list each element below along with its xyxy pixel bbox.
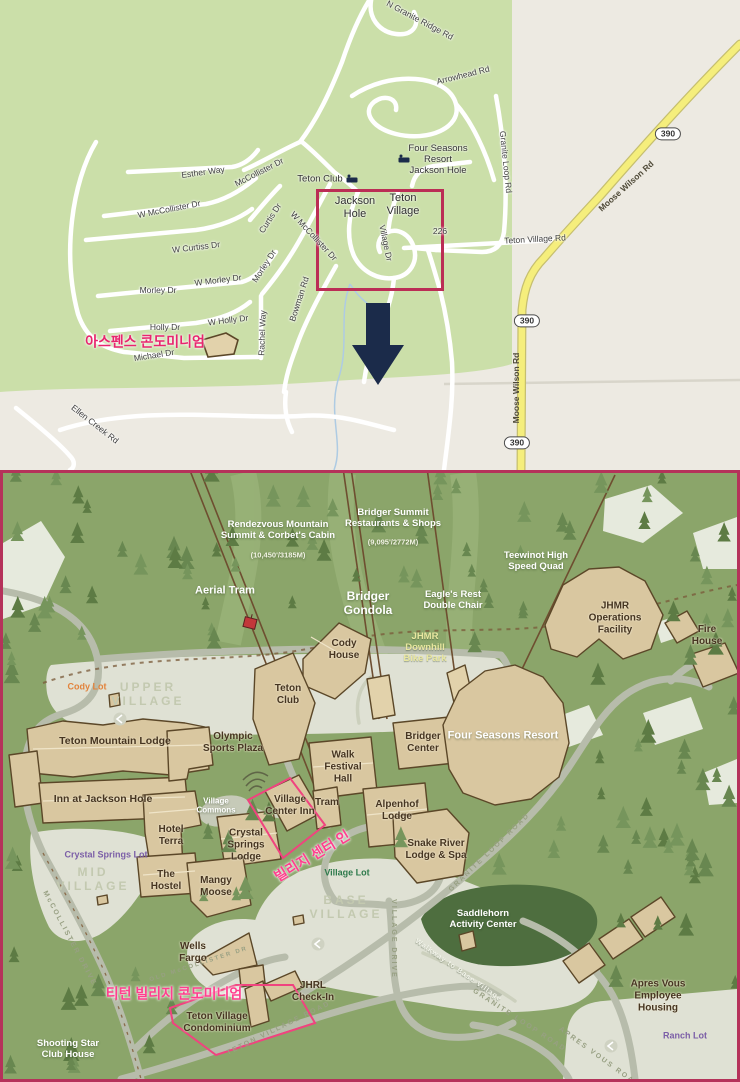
saddlehorn-hut <box>459 931 476 951</box>
lodge-west-wing-building <box>9 751 43 807</box>
resort-base-area-map: Rendezvous Mountain Summit & Corbet's Ca… <box>0 470 740 1082</box>
condo-location-maps: Esther Way McCollister Dr W McCollister … <box>0 0 740 1082</box>
route-390-shield: 390 <box>504 436 530 449</box>
road-map-teton-village: Esther Way McCollister Dr W McCollister … <box>0 0 740 470</box>
highlight-rectangle <box>316 189 444 291</box>
route-390-shield: 390 <box>514 314 540 327</box>
lodging-icon <box>347 178 358 183</box>
lot-kiosk <box>109 693 120 707</box>
lot-kiosk <box>293 915 304 925</box>
resort-map-graphic <box>3 473 737 1079</box>
tram-building <box>313 787 341 829</box>
lodging-icon <box>399 158 410 163</box>
route-390-shield: 390 <box>655 127 681 140</box>
lot-kiosk <box>97 895 108 905</box>
